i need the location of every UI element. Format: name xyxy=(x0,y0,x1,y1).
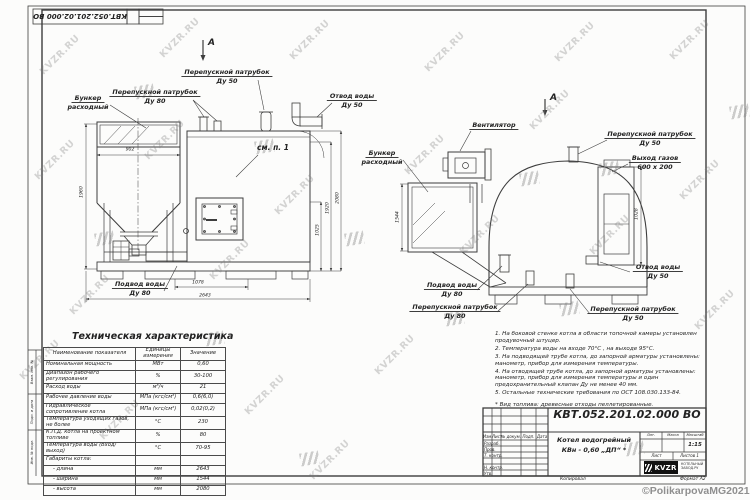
stamp-col-list: Лист xyxy=(492,434,501,439)
label-hopper-front: Бункер расходный xyxy=(67,94,108,112)
stamp-scale-value: 1:15 xyxy=(684,442,706,448)
stamp-doc-number: КВТ.052.201.02.000 ВО xyxy=(548,408,706,432)
stamp-row-utv: Утв. xyxy=(484,471,492,476)
table-row: Гидравлическое сопротивление котлаМПа (к… xyxy=(44,403,226,416)
stamp-scale-label: Масштаб xyxy=(684,433,706,437)
table-row: К.П.Д. котла на проектном топливе%80 xyxy=(44,429,226,442)
dim-gas-height: 1028 xyxy=(635,207,640,221)
note-item: 3. На подводящей трубе котла, до запорно… xyxy=(495,354,707,367)
corner-doc-number: КВТ.052.201.02.000 ВО xyxy=(33,12,127,20)
table-row: Температура уходящих газов, не более°С23… xyxy=(44,416,226,429)
label-see-note: см. п. 1 xyxy=(257,143,289,153)
dim-side-width: 1544 xyxy=(396,210,401,224)
spec-header-units: Единицы измерения xyxy=(136,348,181,361)
label-inlet80-side: Подвод воды Ду 80 xyxy=(424,281,480,299)
dim-hopper-width: 902 xyxy=(125,148,136,153)
drawing-sheet: KVZR.RU KVZR.RU KVZR.RU KVZR.RU KVZR.RU … xyxy=(0,0,750,500)
dim-h2: 1920 xyxy=(326,201,331,215)
kvzr-logo-text: KVZR xyxy=(654,464,676,472)
stamp-lit-label: Лит. xyxy=(640,433,662,437)
stamp-col-podp: Подп. xyxy=(521,434,536,439)
label-outlet50-front: Отвод воды Ду 50 xyxy=(327,92,377,110)
table-row: - ширинамм1544 xyxy=(44,475,226,485)
note-item: 4. На отводящей трубе котла, до запорной… xyxy=(495,369,707,389)
spec-table-title: Техническая характеристика xyxy=(72,331,233,342)
label-fan: Вентилятор xyxy=(469,121,518,130)
margin-label-podp: Подп. и дата xyxy=(30,400,34,424)
dim-w1: 1078 xyxy=(191,281,205,286)
stamp-col-dokum: № докум. xyxy=(501,434,521,439)
table-row: Расход водым³/ч21 xyxy=(44,383,226,393)
dim-w2: 2643 xyxy=(198,294,212,299)
view-marker-a-side: А xyxy=(550,93,557,103)
margin-label-inv: Инв. № подл. xyxy=(30,440,34,465)
spec-table: Наименование показателя Единицы измерени… xyxy=(43,347,226,496)
margin-label-vzam: Взам. инв. № xyxy=(30,360,34,384)
dim-hopper-height: 1960 xyxy=(80,185,85,199)
copyright-text: ©PolikarpovaMG2021 xyxy=(642,485,750,497)
spec-header-row: Наименование показателя Единицы измерени… xyxy=(44,348,226,361)
note-item: 5. Остальные технические требования по О… xyxy=(495,390,707,397)
table-row: Габариты котла: xyxy=(44,455,226,465)
stamp-sheets-label: Листов 1 xyxy=(673,453,706,458)
spec-header-name: Наименование показателя xyxy=(44,348,136,361)
stamp-sheet-label: Лист xyxy=(640,453,673,458)
copied-label: Копировал xyxy=(560,477,586,482)
stamp-col-izm: Изм. xyxy=(483,434,492,439)
label-gas-outlet: Выход газов 600 х 200 xyxy=(629,154,681,172)
note-item: 1. На боковой стенке котла в области топ… xyxy=(495,331,707,344)
table-row: Рабочее давление водыМПа (кгс/см²)0,6(6,… xyxy=(44,393,226,403)
notes-block: 1. На боковой стенке котла в области топ… xyxy=(495,331,707,410)
stamp-col-data: Дата xyxy=(536,434,548,439)
label-hopper-side: Бункер расходный xyxy=(361,149,402,167)
section-marker-a-front: А xyxy=(208,38,215,48)
table-row: - высотамм2080 xyxy=(44,485,226,495)
label-outlet50-side: Отвод воды Ду 50 xyxy=(633,263,683,281)
spec-header-value: Значение xyxy=(181,348,226,361)
table-row: - длинамм2643 xyxy=(44,465,226,475)
stamp-mass-label: Масса xyxy=(662,433,684,437)
label-bypass50-bottom: Перепускной патрубок Ду 50 xyxy=(587,305,678,323)
table-row: Температура воды (Вход/выход)°С70-95 xyxy=(44,442,226,455)
format-label: Формат А2 xyxy=(680,477,706,482)
label-bypass50-front: Перепускной патрубок Ду 50 xyxy=(181,68,272,86)
dim-h1: 1025 xyxy=(316,223,321,237)
label-bypass50-top: Перепускной патрубок Ду 50 xyxy=(604,130,695,148)
company-subtitle: КОТЕЛЬНЫЙ ЗАВОД.РУ xyxy=(681,462,703,471)
stamp-product-name: Котел водогрейный КВн - 0,60 „ДП“ * xyxy=(548,436,640,455)
label-inlet80-front: Подвод воды Ду 80 xyxy=(112,280,168,298)
note-item: 2. Температура воды на входе 70°С , на в… xyxy=(495,346,707,353)
label-bypass80-front: Перепускной патрубок Ду 80 xyxy=(109,88,200,106)
stamp-row-razrab: Разраб. xyxy=(484,441,500,446)
kvzr-logo: KVZR xyxy=(644,461,678,474)
dim-h3: 2080 xyxy=(336,191,341,205)
table-row: Диапазон рабочего регулирования%30-100 xyxy=(44,370,226,383)
stamp-row-nkontr: Н. контр. xyxy=(484,465,503,470)
label-bypass80-side: Перепускной патрубок Ду 80 xyxy=(409,303,500,321)
stamp-row-tkontr: Т. контр. xyxy=(484,453,503,458)
stamp-row-prov: Пров. xyxy=(484,447,496,452)
kvzr-logo-bars-icon xyxy=(645,464,652,472)
table-row: Номинальная мощностьМВт0,60 xyxy=(44,360,226,370)
